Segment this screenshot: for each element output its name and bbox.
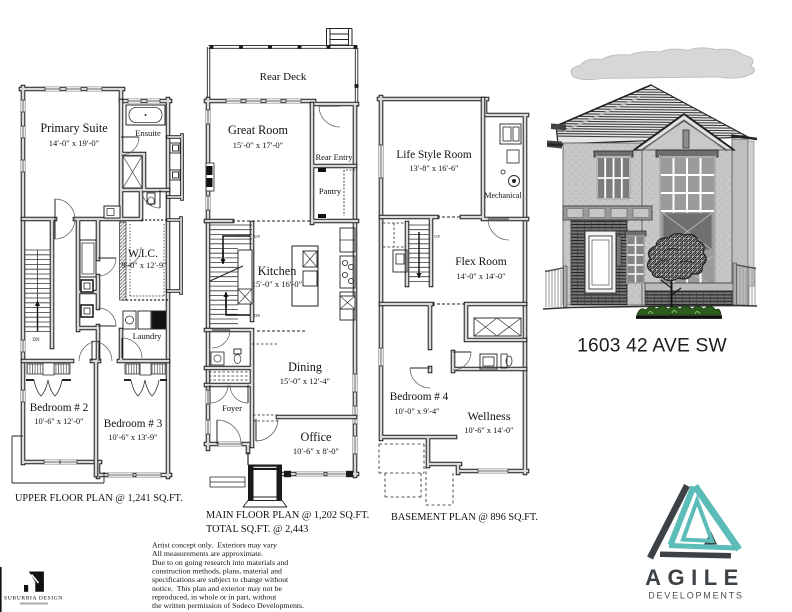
svg-text:All measurements are approxima: All measurements are approximate. <box>152 549 263 558</box>
svg-text:13′-8″ x 16′-6″: 13′-8″ x 16′-6″ <box>409 164 458 173</box>
svg-text:UP: UP <box>434 234 440 239</box>
svg-text:Laundry: Laundry <box>133 331 163 341</box>
svg-text:1603 42 AVE SW: 1603 42 AVE SW <box>577 336 727 357</box>
svg-text:Kitchen: Kitchen <box>258 264 297 278</box>
svg-text:Bedroom # 4: Bedroom # 4 <box>390 391 449 403</box>
svg-text:TOTAL SQ.FT. @ 2,443: TOTAL SQ.FT. @ 2,443 <box>206 524 308 535</box>
svg-text:9′-0″ x 12′-9″: 9′-0″ x 12′-9″ <box>121 261 166 270</box>
svg-text:Rear Entry: Rear Entry <box>315 152 353 162</box>
svg-text:the written permission of Sode: the written permission of Sodeco Develop… <box>152 601 304 610</box>
svg-text:UPPER FLOOR PLAN @ 1,241 SQ.FT: UPPER FLOOR PLAN @ 1,241 SQ.FT. <box>15 493 183 504</box>
svg-text:10′-6″ x 8′-0″: 10′-6″ x 8′-0″ <box>293 446 340 456</box>
svg-text:specifications are subject to: specifications are subject to change wit… <box>152 575 289 584</box>
svg-text:Office: Office <box>301 430 332 444</box>
svg-text:Ensuite: Ensuite <box>135 128 161 138</box>
svg-text:Pantry: Pantry <box>319 186 342 196</box>
svg-text:Foyer: Foyer <box>222 403 242 413</box>
svg-text:SUBURBIA DESIGN: SUBURBIA DESIGN <box>4 596 63 602</box>
svg-text:W.I.C.: W.I.C. <box>128 248 158 260</box>
svg-text:14′-0″ x 14′-0″: 14′-0″ x 14′-0″ <box>456 272 505 281</box>
svg-text:14′-0″ x 19′-0″: 14′-0″ x 19′-0″ <box>49 138 100 148</box>
svg-text:Dining: Dining <box>288 360 322 374</box>
svg-text:10′-6″ x 13′-9″: 10′-6″ x 13′-9″ <box>108 433 157 442</box>
svg-text:15′-0″ x 16′-0″: 15′-0″ x 16′-0″ <box>252 279 303 289</box>
svg-text:MAIN FLOOR PLAN @ 1,202 SQ.FT.: MAIN FLOOR PLAN @ 1,202 SQ.FT. <box>206 510 369 521</box>
svg-text:DEVELOPMENTS: DEVELOPMENTS <box>648 591 744 601</box>
svg-text:Mechanical: Mechanical <box>484 191 522 200</box>
svg-text:Flex Room: Flex Room <box>455 256 506 268</box>
svg-text:15′-0″ x 17′-0″: 15′-0″ x 17′-0″ <box>233 140 284 150</box>
svg-text:15′-0″ x 12′-4″: 15′-0″ x 12′-4″ <box>280 376 331 386</box>
svg-text:UP: UP <box>254 234 260 239</box>
svg-text:Wellness: Wellness <box>467 409 510 423</box>
svg-text:10′-6″ x 14′-0″: 10′-6″ x 14′-0″ <box>464 426 513 435</box>
svg-text:10′-0″ x 9′-4″: 10′-0″ x 9′-4″ <box>394 407 439 416</box>
svg-text:AGILE: AGILE <box>645 565 745 590</box>
svg-text:Due to on going research into: Due to on going research into materials … <box>152 558 288 567</box>
svg-text:DN: DN <box>254 313 260 318</box>
svg-text:Life Style Room: Life Style Room <box>396 149 472 161</box>
svg-text:10′-6″ x 12′-0″: 10′-6″ x 12′-0″ <box>34 417 83 426</box>
svg-text:BASEMENT PLAN @ 896 SQ.FT.: BASEMENT PLAN @ 896 SQ.FT. <box>391 512 538 523</box>
svg-text:Rear Deck: Rear Deck <box>260 71 307 83</box>
svg-text:Bedroom # 2: Bedroom # 2 <box>30 402 88 414</box>
svg-text:Great Room: Great Room <box>228 123 288 137</box>
svg-text:Bedroom # 3: Bedroom # 3 <box>104 418 163 430</box>
svg-text:Primary Suite: Primary Suite <box>40 121 107 135</box>
svg-text:DN: DN <box>32 338 40 343</box>
